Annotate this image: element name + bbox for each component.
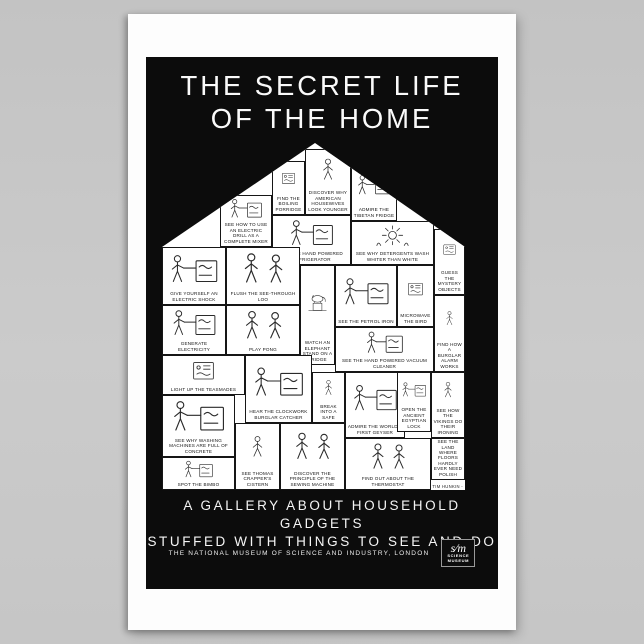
- museum-row: THE NATIONAL MUSEUM OF SCIENCE AND INDUS…: [146, 539, 498, 567]
- gadget-panel: SEE WHY WASHING MACHINES ARE FULL OF CON…: [162, 395, 235, 457]
- panel-caption: SEE HOW TO USE AN ELECTRIC DRILL AS A CO…: [221, 221, 271, 246]
- person-machine-doodle-icon: [163, 248, 225, 290]
- person-doodle-icon: [236, 424, 279, 470]
- gadget-panel: GENERATE ELECTRICITY: [162, 305, 226, 355]
- gadget-panel: SEE THE LAND WHERE FLOORS HARDLY EVER NE…: [431, 438, 465, 480]
- person-machine-doodle-icon: [336, 328, 433, 357]
- panel-caption: LIGHT UP THE TEASMADES: [163, 386, 244, 394]
- person-machine-doodle-icon: [346, 373, 404, 423]
- title-line-1: THE SECRET LIFE: [150, 69, 495, 102]
- gadget-panel: SEE THOMAS CRAPPER'S CISTERN: [235, 423, 280, 490]
- gadget-panel: WATCH AN ELEPHANT STAND ON A FRIDGE: [300, 265, 335, 365]
- panel-caption: GUESS THE MYSTERY OBJECTS: [435, 269, 464, 294]
- panel-caption: BREAK INTO A SAFE: [313, 403, 344, 422]
- gadget-panel: DISCOVER WHY AMERICAN HOUSEWIVES LOOK YO…: [305, 149, 351, 215]
- machine-doodle-icon: [163, 356, 244, 386]
- gadget-panel: BREAK INTO A SAFE: [312, 372, 345, 423]
- panel-caption: FIND THE BOILING PORRIDGE: [273, 195, 304, 214]
- person-machine-doodle-icon: [221, 196, 271, 221]
- gadget-panel: ADMIRE THE WORLD'S FIRST GEYSER: [345, 372, 405, 438]
- person-machine-doodle-icon: [163, 396, 234, 437]
- gadget-panel: ADMIRE THE TIBETAN FRIDGE: [351, 163, 397, 221]
- gadget-panel: HEAR THE CLOCKWORK BURGLAR CATCHER: [245, 355, 312, 423]
- people-doodle-icon: [227, 248, 299, 290]
- gadget-panel: PLAY PONG: [226, 305, 300, 355]
- machine-doodle-icon: [273, 162, 304, 195]
- gadget-panel: FIND THE BOILING PORRIDGE: [272, 161, 305, 215]
- people-doodle-icon: [346, 439, 430, 475]
- panel-caption: SEE THE PETROL IRON: [336, 318, 396, 326]
- person-machine-doodle-icon: [336, 266, 396, 318]
- panel-caption: SEE THE LAND WHERE FLOORS HARDLY EVER NE…: [432, 438, 464, 479]
- person-machine-doodle-icon: [246, 356, 311, 408]
- panel-caption: DISCOVER WHY AMERICAN HOUSEWIVES LOOK YO…: [306, 189, 350, 214]
- panel-caption: FIND HOW A BURGLAR ALARM WORKS: [435, 341, 464, 371]
- gadget-panel: GUESS THE MYSTERY OBJECTS: [434, 229, 465, 295]
- panel-caption: SEE WHY WASHING MACHINES ARE FULL OF CON…: [163, 437, 234, 456]
- machine-doodle-icon: [398, 266, 433, 312]
- person-doodle-icon: [313, 373, 344, 403]
- artist-signature: - TIM HUNKIN -: [429, 484, 463, 489]
- panel-caption: SEE THOMAS CRAPPER'S CISTERN: [236, 470, 279, 489]
- panel-caption: FIND OUT ABOUT THE THERMOSTAT: [346, 475, 430, 489]
- panel-caption: ADMIRE THE TIBETAN FRIDGE: [352, 206, 396, 220]
- gadget-panel: SPOT THE BIMBO: [162, 457, 235, 490]
- gadget-panel: OPEN THE ANCIENT EGYPTIAN LOCK: [397, 372, 431, 432]
- gadget-panel: SEE HOW THE VIKINGS DO THEIR IRONING: [431, 372, 465, 438]
- gadget-panel: SEE WHY DETERGENTS WASH WHITER THAN WHIT…: [351, 221, 434, 265]
- gadget-panel: SEE HOW TO USE AN ELECTRIC DRILL AS A CO…: [220, 195, 272, 247]
- people-doodle-icon: [227, 306, 299, 346]
- person-machine-doodle-icon: [273, 216, 350, 250]
- museum-name: THE NATIONAL MUSEUM OF SCIENCE AND INDUS…: [169, 550, 430, 557]
- sm-caption-museum: MUSEUM: [448, 559, 469, 564]
- panel-caption: OPEN THE ANCIENT EGYPTIAN LOCK: [398, 406, 430, 431]
- gadget-panel: LIGHT UP THE TEASMADES: [162, 355, 245, 395]
- person-machine-doodle-icon: [398, 373, 430, 406]
- gadget-panel: FLUSH THE SEE-THROUGH LOO: [226, 247, 300, 305]
- panel-caption: SEE THE HAND POWERED VACUUM CLEANER: [336, 357, 433, 371]
- panel-caption: ADMIRE THE WORLD'S FIRST GEYSER: [346, 423, 404, 437]
- panel-caption: GENERATE ELECTRICITY: [163, 340, 225, 354]
- house-illustration: - TIM HUNKIN - FIND THE BOILING PORRIDGE…: [162, 143, 465, 490]
- gadget-panel: FIND OUT ABOUT THE THERMOSTAT: [345, 438, 431, 490]
- gadget-panel: SEE THE PETROL IRON: [335, 265, 397, 327]
- gadget-panel: MICROWAVE THE BIRD: [397, 265, 434, 327]
- science-museum-logo: s∕m SCIENCE MUSEUM: [441, 539, 475, 567]
- panel-caption: PLAY PONG: [227, 346, 299, 354]
- panel-caption: SEE WHY DETERGENTS WASH WHITER THAN WHIT…: [352, 250, 433, 264]
- poster-sheet: THE SECRET LIFE OF THE HOME - TIM HUNKIN…: [128, 14, 516, 630]
- poster-black-field: THE SECRET LIFE OF THE HOME - TIM HUNKIN…: [146, 57, 498, 589]
- gadget-panel: GIVE YOURSELF AN ELECTRIC SHOCK: [162, 247, 226, 305]
- panel-caption: SPOT THE BIMBO: [163, 481, 234, 489]
- panel-caption: GIVE YOURSELF AN ELECTRIC SHOCK: [163, 290, 225, 304]
- machine-doodle-icon: [435, 230, 464, 269]
- title-line-2: OF THE HOME: [150, 102, 495, 135]
- panel-caption: HEAR THE CLOCKWORK BURGLAR CATCHER: [246, 408, 311, 422]
- tagline-line-1: A GALLERY ABOUT HOUSEHOLD GADGETS: [146, 497, 498, 533]
- person-machine-doodle-icon: [163, 306, 225, 340]
- elephant-doodle-icon: [301, 266, 334, 339]
- people-doodle-icon: [281, 424, 344, 470]
- person-doodle-icon: [432, 373, 464, 407]
- person-machine-doodle-icon: [352, 164, 396, 206]
- gadget-panel: FIND HOW A BURGLAR ALARM WORKS: [434, 295, 465, 372]
- panel-caption: SEE HOW THE VIKINGS DO THEIR IRONING: [432, 407, 464, 437]
- panel-caption: MICROWAVE THE BIRD: [398, 312, 433, 326]
- panel-caption: FLUSH THE SEE-THROUGH LOO: [227, 290, 299, 304]
- person-doodle-icon: [306, 150, 350, 189]
- gadget-panel: DISCOVER THE PRINCIPLE OF THE SEWING MAC…: [280, 423, 345, 490]
- person-machine-doodle-icon: [163, 458, 234, 481]
- gray-backdrop: THE SECRET LIFE OF THE HOME - TIM HUNKIN…: [0, 0, 644, 644]
- poster-title: THE SECRET LIFE OF THE HOME: [150, 69, 495, 135]
- person-doodle-icon: [435, 296, 464, 341]
- panel-caption: DISCOVER THE PRINCIPLE OF THE SEWING MAC…: [281, 470, 344, 489]
- sun-doodle-icon: [352, 222, 433, 250]
- gadget-panel: SEE THE HAND POWERED VACUUM CLEANER: [335, 327, 434, 372]
